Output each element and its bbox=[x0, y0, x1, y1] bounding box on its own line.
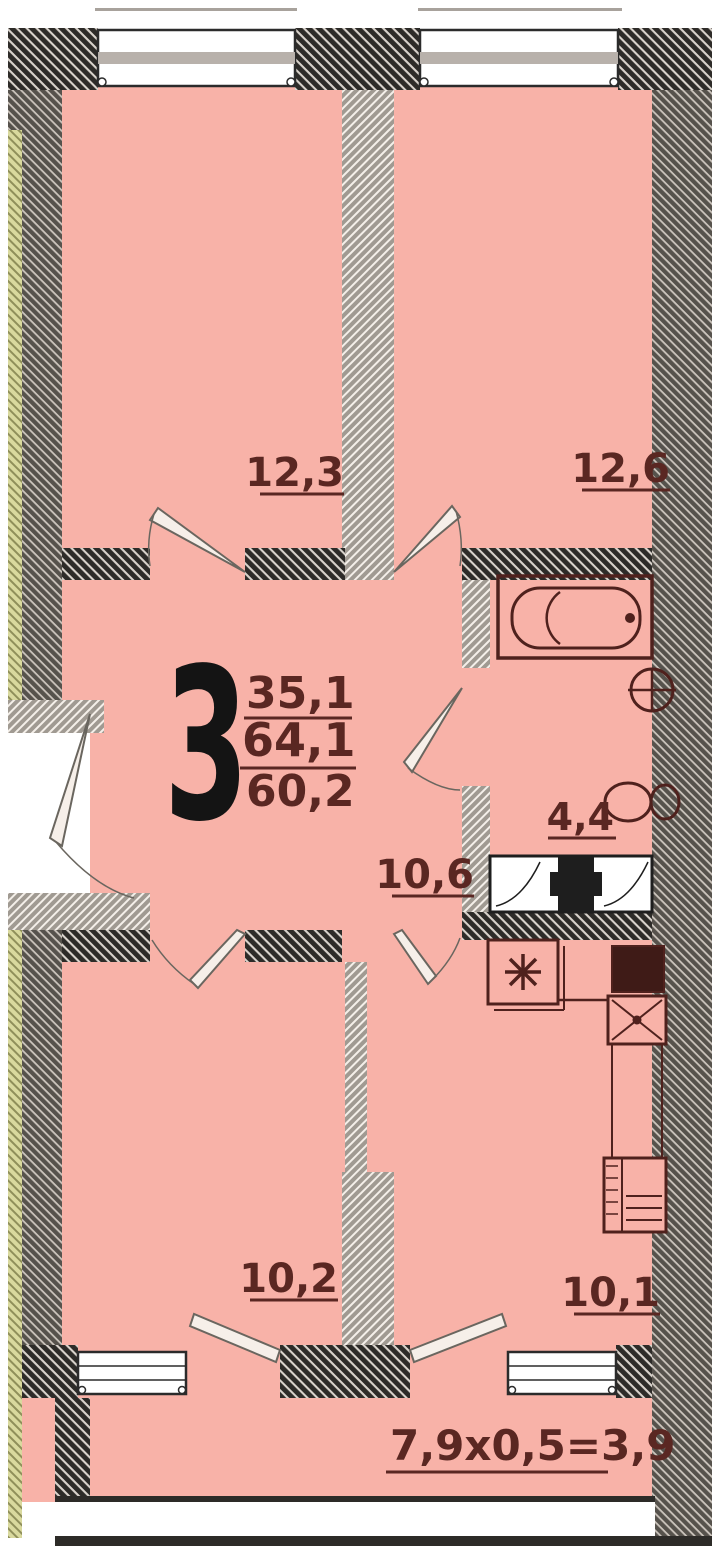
boiler-icon bbox=[488, 940, 564, 1010]
balcony-area-formula: 7,9x0,5=3,9 bbox=[390, 1421, 676, 1470]
balcony-parapet bbox=[55, 1502, 655, 1536]
total-area-label: 64,1 bbox=[242, 713, 356, 767]
room-area-bedroom-bottom-left: 10,2 bbox=[239, 1256, 338, 1302]
kitchen-sink-icon bbox=[608, 996, 666, 1044]
vent-shaft-icon bbox=[490, 856, 652, 912]
room-area-bedroom-top-left: 12,3 bbox=[245, 450, 344, 496]
wall-hall-bottom-b bbox=[245, 930, 342, 962]
stove-icon bbox=[612, 946, 664, 992]
window-bottom-right-icon bbox=[508, 1352, 616, 1394]
wall-top-left bbox=[8, 28, 98, 90]
wall-bottom-left-corner bbox=[22, 1345, 78, 1398]
wall-top-right bbox=[618, 28, 712, 90]
living-area-label: 35,1 bbox=[246, 668, 355, 719]
floor-plan-canvas: 3 35,1 64,1 60,2 12,3 12,6 4,4 10,6 10,2… bbox=[0, 0, 720, 1548]
sill-line bbox=[418, 8, 622, 11]
sill-line bbox=[95, 8, 297, 11]
balcony-parapet-top-line bbox=[55, 1496, 655, 1502]
balcony-parapet-bottom bbox=[55, 1536, 712, 1546]
room-area-hallway: 10,6 bbox=[375, 852, 474, 898]
washbasin-icon bbox=[628, 669, 676, 711]
window-bottom-left-icon bbox=[78, 1352, 186, 1394]
room-area-bedroom-top-right: 12,6 bbox=[571, 446, 670, 492]
wall-hall-bottom-a bbox=[62, 930, 150, 962]
window-top-left-icon bbox=[98, 30, 295, 86]
floor-plan-drawing: 3 35,1 64,1 60,2 12,3 12,6 4,4 10,6 10,2… bbox=[0, 0, 720, 1548]
reduced-area-label: 60,2 bbox=[246, 766, 355, 817]
wall-bottom-right bbox=[616, 1345, 652, 1398]
wall-hall-top-a bbox=[62, 548, 150, 580]
wall-vestibule-bottom bbox=[8, 893, 150, 930]
window-top-right-icon bbox=[420, 30, 618, 86]
wall-top-middle bbox=[295, 28, 420, 90]
wall-hall-top-b bbox=[245, 548, 345, 580]
room-area-bathroom: 4,4 bbox=[547, 795, 614, 839]
wall-kitchen-top bbox=[462, 912, 652, 940]
apartment-rooms-count: 3 bbox=[164, 625, 249, 868]
wall-top-rooms-divider bbox=[342, 90, 394, 580]
fridge-icon bbox=[604, 1158, 666, 1232]
room-area-kitchen: 10,1 bbox=[561, 1270, 660, 1316]
wall-bottom-rooms-divider-thin bbox=[345, 962, 367, 1172]
wall-bathroom-left-upper bbox=[462, 580, 490, 668]
wall-bottom-center bbox=[280, 1345, 410, 1398]
